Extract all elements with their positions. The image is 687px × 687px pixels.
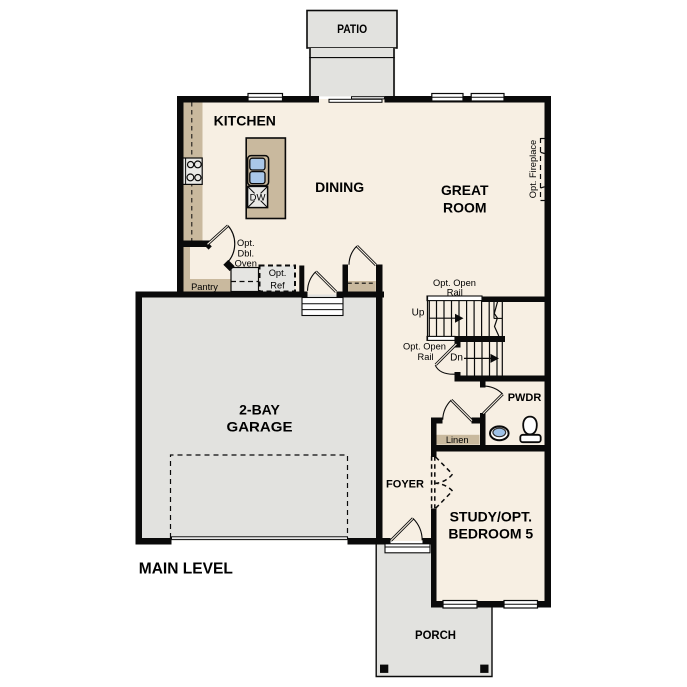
svg-text:Rail: Rail bbox=[447, 288, 463, 298]
svg-text:PORCH: PORCH bbox=[415, 628, 456, 642]
svg-text:Rail: Rail bbox=[417, 352, 433, 362]
svg-text:Up: Up bbox=[412, 307, 425, 318]
svg-text:Opt. Open: Opt. Open bbox=[403, 342, 446, 352]
svg-text:MAIN LEVEL: MAIN LEVEL bbox=[139, 560, 233, 577]
svg-text:Pantry: Pantry bbox=[191, 282, 218, 292]
svg-text:DW: DW bbox=[250, 193, 266, 204]
svg-text:GARAGE: GARAGE bbox=[227, 418, 293, 434]
svg-text:Opt. Fireplace: Opt. Fireplace bbox=[528, 140, 538, 198]
svg-text:KITCHEN: KITCHEN bbox=[214, 113, 276, 129]
svg-text:Opt.: Opt. bbox=[269, 268, 287, 278]
svg-text:Linen: Linen bbox=[446, 435, 469, 445]
svg-text:Opt.: Opt. bbox=[237, 238, 255, 248]
svg-text:DINING: DINING bbox=[315, 179, 364, 195]
svg-text:ROOM: ROOM bbox=[443, 200, 487, 216]
svg-text:BEDROOM 5: BEDROOM 5 bbox=[448, 525, 533, 541]
svg-text:2-BAY: 2-BAY bbox=[239, 401, 280, 417]
svg-text:Oven: Oven bbox=[235, 259, 257, 269]
svg-text:FOYER: FOYER bbox=[386, 478, 424, 490]
svg-text:Dn: Dn bbox=[450, 352, 463, 363]
svg-text:Ref: Ref bbox=[270, 280, 285, 290]
svg-text:PWDR: PWDR bbox=[508, 392, 542, 404]
svg-text:GREAT: GREAT bbox=[441, 182, 489, 198]
svg-text:PATIO: PATIO bbox=[337, 22, 367, 36]
svg-text:Dbl.: Dbl. bbox=[238, 248, 255, 258]
svg-text:STUDY/OPT.: STUDY/OPT. bbox=[450, 508, 532, 524]
